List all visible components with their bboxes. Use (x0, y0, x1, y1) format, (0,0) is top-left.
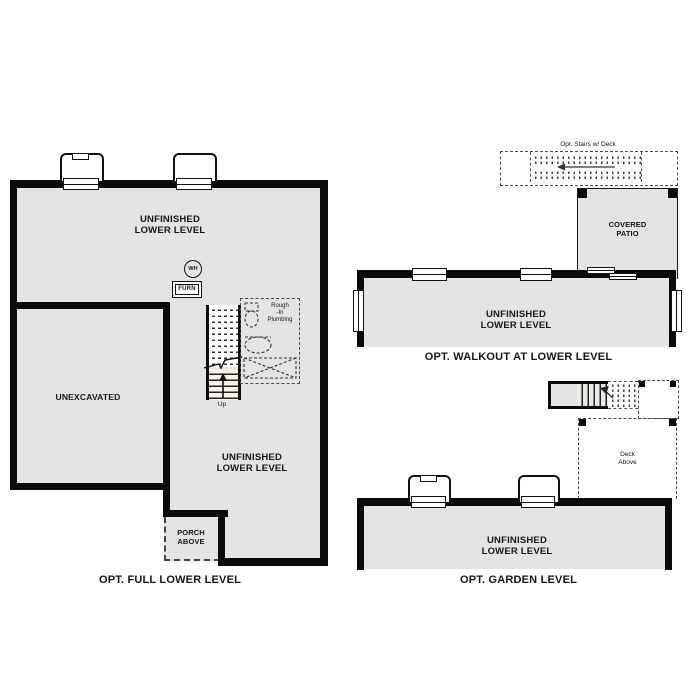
plan-caption-walkout: OPT. WALKOUT AT LOWER LEVEL (350, 351, 687, 364)
plan-caption-garden: OPT. GARDEN LEVEL (350, 574, 687, 587)
basement-window (63, 178, 99, 190)
unexcavated-wall-top (10, 302, 170, 309)
stair-up-label: Up (210, 401, 234, 409)
patio-post (578, 189, 587, 198)
opt-deck-stairs (500, 151, 678, 186)
plan-full-lower-level: Up Rough -In Plumbing WH FURN UNFINISHED… (10, 150, 330, 595)
deck-stair-divider (641, 152, 642, 182)
floor-area-upper (17, 188, 320, 302)
sliding-door-panel (609, 273, 637, 280)
deck-post (670, 381, 676, 387)
plan-caption-full-lower: OPT. FULL LOWER LEVEL (10, 574, 330, 587)
garden-wall-right (665, 498, 672, 570)
furnace: FURN (172, 281, 202, 298)
deck-post (579, 419, 586, 426)
exterior-wall-bottom (218, 558, 328, 566)
patio-post (668, 189, 677, 198)
furnace-label: FURN (178, 286, 195, 293)
egress-ladder (72, 154, 89, 160)
wing-wall-left (163, 302, 170, 517)
egress-ladder (420, 476, 437, 482)
window (353, 290, 364, 332)
water-heater: WH (184, 260, 202, 278)
exterior-wall-left (10, 180, 17, 490)
stair-landing (548, 381, 577, 409)
rough-in-plumbing-label: Rough -In Plumbing (263, 303, 297, 324)
deck-above-label: Deck Above (579, 451, 676, 466)
deck-post (669, 419, 676, 426)
basement-window (411, 496, 446, 508)
floorplan-sheet: { "colors":{ "floor":"#e6e4e2", "wall":"… (0, 0, 687, 687)
basement-window (521, 496, 555, 508)
stair-up-arrow (217, 371, 229, 399)
room-label-unfinished-lower: UNFINISHED LOWER LEVEL (152, 452, 352, 474)
plan-garden-level: Deck Above UNFINISHED LOWER LEVEL OPT. G… (350, 375, 687, 593)
deck-stair-landing-box (638, 380, 679, 419)
porch-above-label: PORCH ABOVE (168, 529, 214, 547)
covered-patio: COVERED PATIO (577, 188, 678, 279)
stair-break-line (204, 356, 242, 370)
deck-stair-arrow (549, 162, 619, 172)
rough-in-plumbing-box: Rough -In Plumbing (240, 298, 300, 384)
unexcavated-wall-bottom (10, 483, 170, 490)
room-label-unexcavated: UNEXCAVATED (28, 392, 148, 402)
deck-post (639, 381, 645, 387)
plan-walkout-lower-level: Opt. Stairs w/ Deck COVERED PATIO UNFINI… (350, 140, 687, 372)
deck-stair-divider (530, 152, 531, 182)
window (412, 268, 447, 281)
room-label-unfinished-upper: UNFINISHED LOWER LEVEL (70, 214, 270, 236)
deck-above-area: Deck Above (578, 418, 677, 499)
room-label-unfinished: UNFINISHED LOWER LEVEL (416, 309, 616, 331)
stair-arrow (598, 384, 614, 402)
basement-window (176, 178, 212, 190)
garden-wall-left (357, 498, 364, 570)
exterior-wall-right (320, 180, 328, 566)
covered-patio-label: COVERED PATIO (578, 221, 677, 239)
room-label-unfinished: UNFINISHED LOWER LEVEL (417, 535, 617, 557)
water-heater-label: WH (188, 266, 197, 272)
window (671, 290, 682, 332)
window (520, 268, 552, 281)
opt-stairs-label: Opt. Stairs w/ Deck (500, 141, 676, 149)
garden-wall-top (357, 498, 672, 506)
exterior-wall-top (10, 180, 328, 188)
